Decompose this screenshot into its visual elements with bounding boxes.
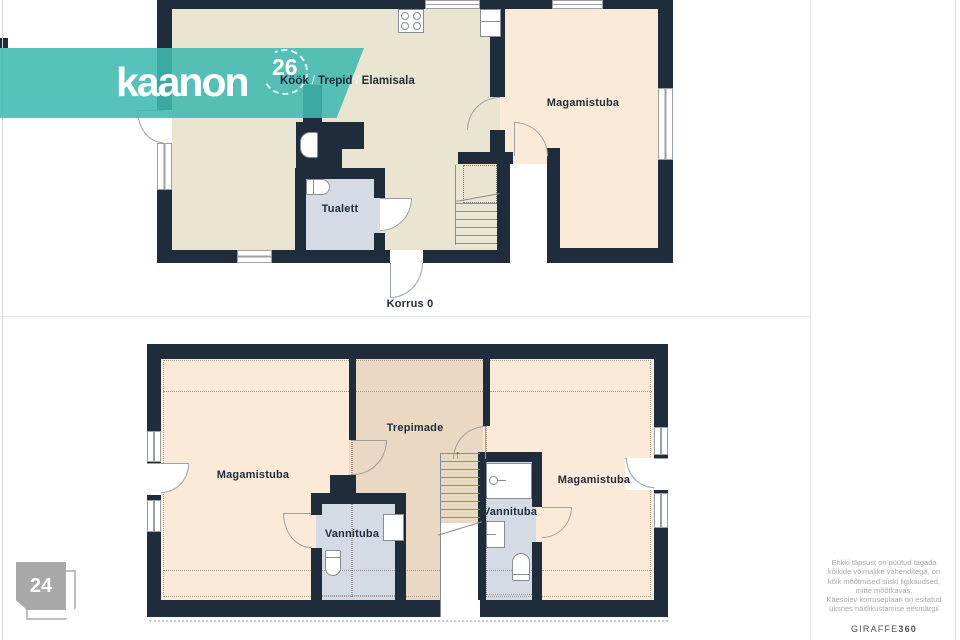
stove-burner-icon xyxy=(401,12,409,20)
wall xyxy=(157,250,510,263)
wall xyxy=(147,344,668,359)
wall xyxy=(547,248,673,263)
faucet-icon xyxy=(497,480,506,481)
utility-wall-block xyxy=(342,122,364,149)
wall xyxy=(547,148,560,263)
stairwell-void xyxy=(441,600,480,617)
toilet-icon xyxy=(325,557,341,558)
wall xyxy=(295,168,306,263)
wall xyxy=(349,352,356,440)
window xyxy=(658,88,673,160)
page-badge: 24 xyxy=(16,562,66,610)
window xyxy=(654,427,668,455)
shower-icon xyxy=(383,514,404,541)
wall xyxy=(311,493,406,504)
sink-icon xyxy=(300,132,318,158)
floor-separator xyxy=(0,316,810,317)
room-label-landing: Trepimade xyxy=(387,422,444,434)
page-badge-number: 24 xyxy=(30,575,52,598)
room-label-bathroom-right: Vannituba xyxy=(483,506,537,518)
wall xyxy=(311,548,322,600)
ceiling-height-dotted-line xyxy=(407,570,440,571)
disclaimer-line: Käesolev korruseplaan on esitatud xyxy=(812,595,956,604)
wall xyxy=(374,233,385,263)
floorplan-page: Magamistuba Tualett Korrus 0 kaanon 26 K… xyxy=(0,0,960,640)
ceiling-height-dotted-line xyxy=(322,595,395,596)
window xyxy=(654,493,668,528)
kitchen-sink-icon xyxy=(480,21,501,22)
stove-burner-icon xyxy=(413,12,421,20)
stairs xyxy=(440,453,480,523)
kaanon-logo: kaanon xyxy=(116,62,248,103)
wall xyxy=(532,452,542,507)
room-label-bathroom-left: Vannituba xyxy=(325,528,379,540)
disclaimer-line: mitte mõõtkavas. xyxy=(812,586,956,595)
window xyxy=(552,0,603,9)
disclaimer-line: Ehkki täpsust on püütud tagada xyxy=(812,558,956,567)
disclaimer-line: kõik mõõtmised siiski ligikaudsed, xyxy=(812,577,956,586)
location-breadcrumb: Köök/Trepid/Elamisala xyxy=(280,75,415,87)
location-part: Trepid xyxy=(318,75,353,87)
stove-burner-icon xyxy=(413,22,421,30)
room-label-bedroom-left: Magamistuba xyxy=(217,469,290,481)
location-part: Elamisala xyxy=(362,75,415,87)
ceiling-height-dotted-line xyxy=(163,391,349,392)
window xyxy=(147,500,161,532)
disclaimer-text: Ehkki täpsust on püütud tagada kõikide v… xyxy=(812,558,956,614)
room-label-bedroom-right: Magamistuba xyxy=(558,474,631,486)
sink-icon xyxy=(487,534,496,535)
page-border-right xyxy=(955,0,956,640)
door-opening xyxy=(147,464,161,495)
wall xyxy=(147,600,668,617)
wall xyxy=(483,352,490,426)
stove-burner-icon xyxy=(401,22,409,30)
window xyxy=(237,250,272,263)
wall xyxy=(497,164,510,250)
giraffe360-brand: GIRAFFE xyxy=(851,624,898,634)
toilet-icon xyxy=(325,550,341,576)
toilet-icon xyxy=(512,574,530,575)
wall xyxy=(458,152,513,164)
ceiling-height-dotted-line xyxy=(163,570,311,571)
giraffe360-watermark: GIRAFFE360 xyxy=(812,624,956,634)
location-part: Köök xyxy=(280,75,309,87)
separator: / xyxy=(312,75,315,87)
roof-edge-dotted-band xyxy=(149,620,668,622)
floor0-caption: Korrus 0 xyxy=(387,298,434,310)
toilet-icon xyxy=(313,179,314,195)
room-label-bedroom: Magamistuba xyxy=(547,97,620,109)
kitchen-sink-icon xyxy=(480,9,501,37)
stairs-up-arrow-icon: ↑ xyxy=(455,450,461,461)
stairs xyxy=(455,203,497,245)
door-opening xyxy=(390,250,423,263)
window xyxy=(425,0,480,9)
wall xyxy=(395,493,406,600)
window xyxy=(147,431,161,462)
disclaimer-line: kõikide võimalike vahenditega, on xyxy=(812,567,956,576)
toilet-icon xyxy=(306,179,330,195)
ceiling-height-dotted-line xyxy=(542,570,652,571)
exterior-notch xyxy=(510,164,547,264)
door-arc xyxy=(390,263,423,298)
wall xyxy=(532,542,542,600)
ceiling-height-dotted-line xyxy=(490,391,652,392)
ceiling-height-dotted-line xyxy=(486,594,532,595)
separator: / xyxy=(355,75,358,87)
toilet-icon xyxy=(512,553,530,581)
wall xyxy=(374,168,385,198)
room-label-toilet: Tualett xyxy=(322,203,359,215)
ceiling-height-dotted-line xyxy=(356,391,483,392)
wall xyxy=(295,168,385,179)
window xyxy=(157,143,172,190)
giraffe360-suffix: 360 xyxy=(898,624,917,634)
stairs-edge xyxy=(455,165,456,245)
sidebar-divider xyxy=(810,0,811,640)
disclaimer-line: üksnes näitlikustamise eesmärgil xyxy=(812,604,956,613)
